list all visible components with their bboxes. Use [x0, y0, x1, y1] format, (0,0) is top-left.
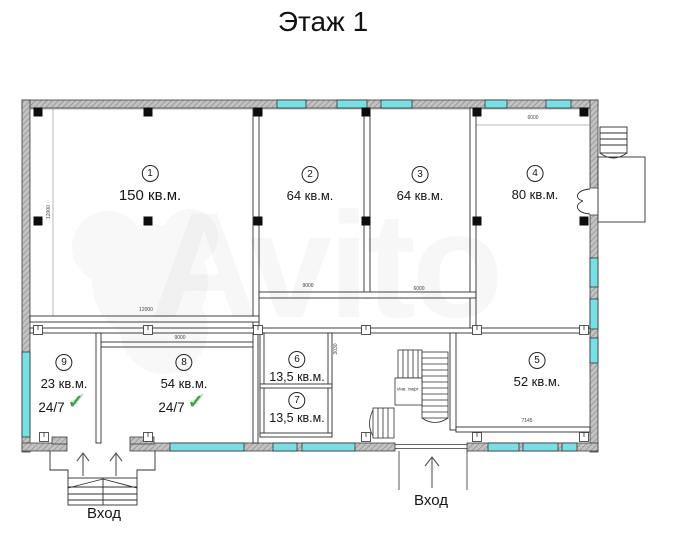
room-3-label: 3 64 кв.м. [397, 164, 444, 203]
room-area-label: 13,5 кв.м. [269, 370, 324, 384]
porch-topright [598, 157, 645, 222]
room-number-badge: 5 [528, 352, 545, 369]
dimension-label: 9000 [174, 335, 185, 341]
dimension-label: 9000 [302, 283, 313, 289]
room-5-label: 5 52 кв.м. [514, 350, 561, 389]
availability-badge: 24/7 ✓✓ [158, 398, 209, 416]
availability-badge: 24/7 ✓✓ [38, 398, 89, 416]
room-number-badge: 6 [288, 351, 305, 368]
room-2-label: 2 64 кв.м. [287, 164, 334, 203]
watermark-logo-circles [72, 209, 218, 374]
dimension-label: 6000 [413, 286, 424, 292]
room-number-badge: 9 [56, 354, 73, 371]
room-9-label: 9 23 кв.м. 24/7 ✓✓ [38, 352, 89, 416]
room-area-label: 52 кв.м. [514, 374, 561, 389]
dimension-label: 12000 [46, 205, 52, 219]
room-area-label: 64 кв.м. [397, 188, 444, 203]
room-number-badge: 1 [142, 165, 159, 182]
entrance-label-right: Вход [414, 492, 448, 509]
room-area-label: 64 кв.м. [287, 188, 334, 203]
room-4-label: 4 80 кв.м. [512, 163, 559, 202]
entrance-label-left: Вход [87, 505, 121, 522]
staircase-central [370, 350, 449, 438]
arrow-up-icon [110, 453, 122, 476]
room-8-label: 8 54 кв.м. 24/7 ✓✓ [158, 352, 209, 416]
double-door-right [577, 189, 590, 214]
room-number-badge: 4 [526, 165, 543, 182]
entrance-right-opening [395, 445, 467, 491]
room-number-badge: 2 [301, 166, 318, 183]
room-number-badge: 7 [288, 392, 305, 409]
dimension-label: 6000 [527, 115, 538, 121]
room-1-label: 1 150 кв.м. [119, 163, 181, 204]
lift-box [395, 378, 422, 405]
floor-plan-svg [0, 0, 692, 540]
room-area-label: 150 кв.м. [119, 187, 181, 204]
room-number-badge: 8 [176, 354, 193, 371]
room-area-label: 23 кв.м. [38, 376, 89, 391]
room-number-badge: 3 [411, 166, 428, 183]
lift-label: Инв. лифт [397, 387, 418, 392]
dimension-label: 12000 [139, 307, 153, 313]
entrance-left-porch [50, 451, 155, 505]
arrow-up-icon [425, 457, 439, 488]
dimension-label: 7145 [521, 418, 532, 424]
room-area-label: 80 кв.м. [512, 187, 559, 202]
checkmark-icon: ✓✓ [188, 398, 210, 416]
checkmark-icon: ✓✓ [68, 398, 90, 416]
page-title: Этаж 1 [278, 6, 368, 38]
room-6-label: 6 13,5 кв.м. [269, 349, 324, 384]
room-area-label: 54 кв.м. [158, 376, 209, 391]
dimension-label: 3030 [333, 343, 339, 354]
room-area-label: 13,5 кв.м. [269, 411, 324, 425]
arrow-up-icon [77, 453, 89, 476]
room-7-label: 7 13,5 кв.м. [269, 390, 324, 425]
exterior-stair-topright [598, 127, 645, 222]
floor-plan-page: Этаж 1 [0, 0, 692, 540]
